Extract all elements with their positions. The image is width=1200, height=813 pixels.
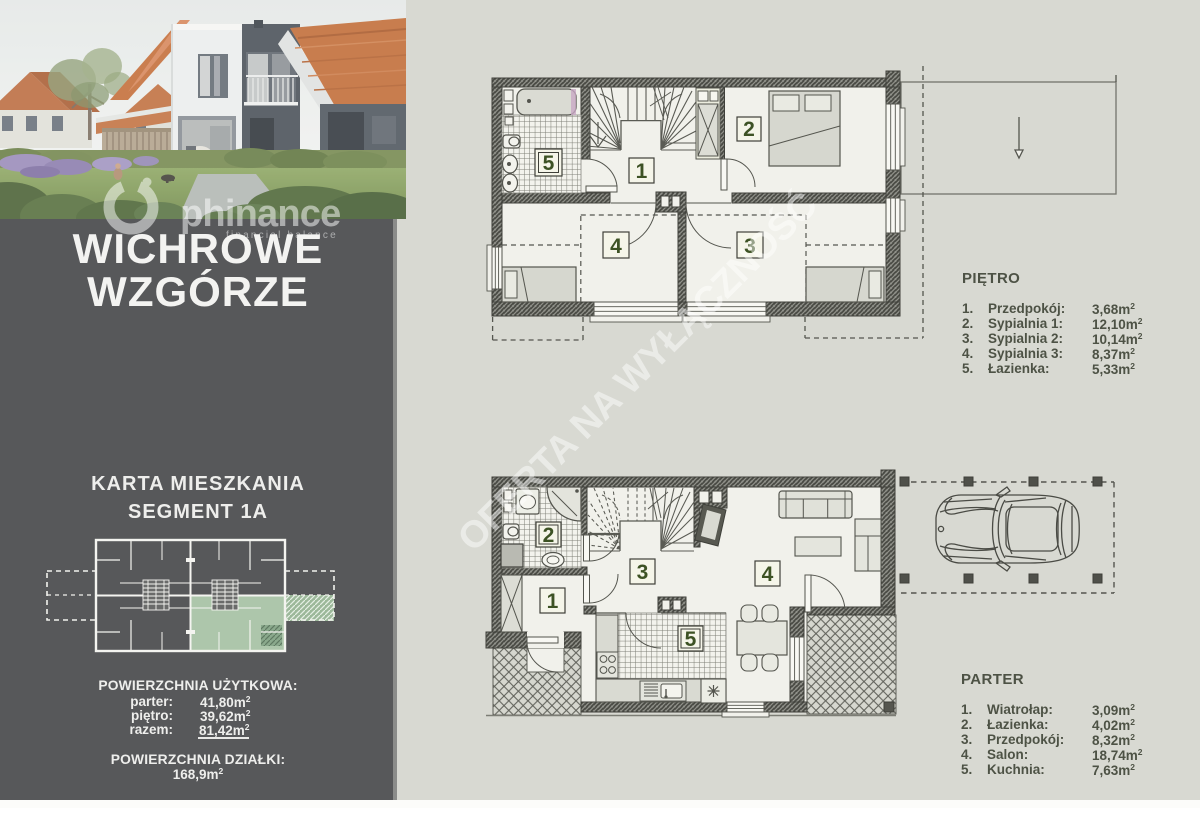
svg-text:3: 3 xyxy=(637,561,649,584)
svg-text:1: 1 xyxy=(636,160,648,183)
svg-text:2: 2 xyxy=(543,524,555,547)
svg-text:4: 4 xyxy=(610,235,622,258)
svg-text:2: 2 xyxy=(743,118,755,141)
svg-text:5: 5 xyxy=(543,152,555,175)
svg-text:4: 4 xyxy=(762,563,774,586)
svg-text:1: 1 xyxy=(547,590,559,613)
svg-text:5: 5 xyxy=(685,628,697,651)
